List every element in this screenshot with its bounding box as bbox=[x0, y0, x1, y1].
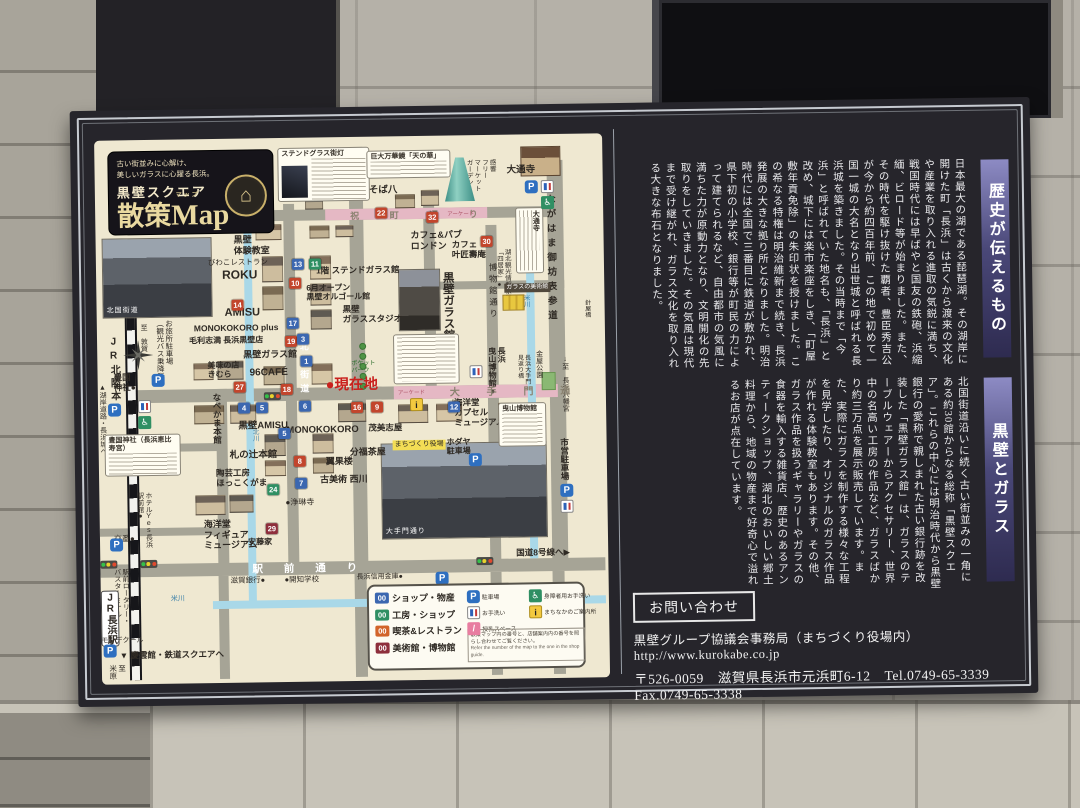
map-label: 黒壁ガラス館 bbox=[440, 271, 455, 340]
photo-inset bbox=[398, 269, 441, 332]
map-label: 米川 bbox=[171, 595, 185, 603]
number-badge: 7 bbox=[295, 478, 307, 489]
legend-category-label: 喫茶&レストラン bbox=[392, 623, 462, 637]
photo-inset: 北国街道 bbox=[102, 237, 213, 319]
contact-line-2: 〒526-0059 滋賀県長浜市元浜町6-12 Tel.0749-65-3339… bbox=[634, 662, 1026, 704]
kurokabe-glass-body: 北国街道沿いに続く古い街並みの一角にある約30館からなる総称「黒壁スクエア」。こ… bbox=[630, 376, 973, 595]
map-label: 金屋公園 bbox=[534, 350, 543, 378]
callout-box: 大通寺 bbox=[515, 207, 544, 273]
contact-box: お問い合わせ 黒壁グループ協議会事務局（まちづくり役場内） http://www… bbox=[633, 587, 1026, 679]
parking-icon: P bbox=[110, 538, 123, 551]
photo-caption: 大手門通り bbox=[386, 526, 426, 537]
map-label: 札の辻本館 bbox=[230, 449, 278, 461]
legend-category-label: 工房・ショップ bbox=[392, 607, 455, 621]
kurokabe-glass-section: 黒壁とガラス 北国街道沿いに続く古い街並みの一角にある約30館からなる総称「黒壁… bbox=[630, 373, 1017, 597]
number-badge: 13 bbox=[292, 259, 304, 270]
map-label: ながはま御坊表参道 bbox=[544, 194, 557, 325]
wheelchair-icon: ♿ bbox=[541, 196, 554, 209]
map-label: そば八 bbox=[369, 184, 398, 196]
info-icon: i bbox=[410, 398, 423, 411]
number-badge: 11 bbox=[309, 258, 321, 269]
number-badge: 6 bbox=[299, 401, 311, 412]
building bbox=[265, 460, 286, 476]
toilet-icon bbox=[469, 365, 482, 378]
map-panel: 北国街道大手門通りステンドグラス街灯巨大万華鏡「天の華」大通寺曳山博物館豊国神社… bbox=[94, 133, 610, 684]
legend-category: 00ショップ・物産 bbox=[375, 590, 467, 604]
map-label: 美味の店 きむら bbox=[207, 361, 239, 380]
street-segment bbox=[219, 576, 231, 679]
legend-facility-label: まちなかのご案内所 bbox=[544, 606, 596, 616]
compass-icon bbox=[123, 340, 153, 370]
photo-background: 北国街道大手門通りステンドグラス街灯巨大万華鏡「天の華」大通寺曳山博物館豊国神社… bbox=[0, 0, 1080, 808]
legend-category-label: ショップ・物産 bbox=[392, 590, 455, 604]
legend-category: 00工房・ショップ bbox=[375, 607, 467, 621]
map-label: 分福茶屋 bbox=[350, 447, 386, 458]
history-heading: 歴史が伝えるもの bbox=[980, 159, 1011, 357]
traffic-signal-icon bbox=[264, 392, 281, 400]
legend-category-badge: 00 bbox=[375, 625, 389, 636]
map-label: 大通寺 bbox=[506, 164, 535, 176]
history-section: 歴史が伝えるもの 日本最大の湖である琵琶湖。その湖岸に開けた町「長浜」は古くから… bbox=[626, 155, 1013, 373]
building bbox=[421, 190, 439, 206]
number-badge: 8 bbox=[294, 456, 306, 467]
map-legend: 00ショップ・物産00工房・ショップ00喫茶&レストラン00美術館・博物館 P駐… bbox=[367, 582, 586, 671]
callout-title: 巨大万華鏡「天の華」 bbox=[370, 153, 446, 162]
map-label: 黒壁ガラス館 bbox=[243, 349, 297, 360]
map-label: 6月オープン 黒壁オルゴール館 bbox=[306, 283, 370, 303]
dark-wall-opening bbox=[96, 0, 340, 122]
map-label: 長浜大手門 見返り橋 bbox=[515, 354, 530, 384]
callout-box: 巨大万華鏡「天の華」 bbox=[366, 150, 450, 179]
number-badge: 24 bbox=[267, 484, 279, 495]
building bbox=[195, 495, 225, 515]
map-label: 至 米原 bbox=[108, 664, 126, 684]
map-label: ●開知学校 bbox=[285, 576, 320, 585]
photo-caption: 北国街道 bbox=[107, 305, 139, 315]
legend-note: 散策マップ内の番号と、店舗案内内の番号を照らし合わせてご覧ください。 Refer… bbox=[467, 628, 585, 663]
map-label: 北国街道 bbox=[298, 342, 309, 398]
map-label: 市営駐車場 bbox=[560, 438, 571, 481]
info-panel: 歴史が伝えるもの 日本最大の湖である琵琶湖。その湖岸に開けた町「長浜」は古くから… bbox=[626, 137, 1017, 591]
legend-facility: ♿身障者用お手洗い bbox=[529, 588, 596, 602]
legend-category: 00美術館・博物館 bbox=[376, 640, 468, 654]
history-body: 日本最大の湖である琵琶湖。その湖岸に開けた町「長浜」は古くから渡来の文化や産業を… bbox=[626, 158, 969, 371]
legend-category-badge: 00 bbox=[375, 609, 389, 620]
legend-facility: お手洗い bbox=[467, 606, 516, 620]
map-title-jp: 散策 bbox=[117, 201, 171, 232]
number-badge: 9 bbox=[371, 402, 383, 413]
legend-note-en: Refer the number of the map to the one i… bbox=[471, 645, 583, 660]
parking-icon: P bbox=[525, 180, 538, 193]
number-badge: 32 bbox=[426, 212, 438, 223]
legend-facility: P駐車場 bbox=[467, 590, 516, 604]
map-label: 安藤家 bbox=[248, 537, 272, 547]
map-label: 毛利志満 長浜黒壁店 bbox=[189, 335, 263, 346]
map-title-block: 古い街並みに心解け、 美しいガラスに心躍る長浜。 黒壁スクエア 散策マップMap… bbox=[108, 150, 273, 234]
number-badge: 5 bbox=[256, 402, 268, 413]
legend-category-badge: 00 bbox=[375, 592, 389, 603]
building bbox=[311, 309, 332, 329]
traffic-signal-icon bbox=[100, 560, 117, 568]
map-label: MONOKOKORO plus bbox=[194, 322, 279, 333]
callout-box: 豊国神社（長浜恵比寿宮） bbox=[104, 434, 181, 477]
toilet-icon bbox=[541, 180, 554, 193]
legend-facility-label: 駐車場 bbox=[482, 592, 500, 601]
building bbox=[309, 225, 329, 238]
callout-title: 豊国神社（長浜恵比寿宮） bbox=[108, 437, 176, 454]
number-badge: 16 bbox=[351, 402, 363, 413]
map-label: なべかま本館 bbox=[212, 393, 223, 444]
traffic-signal-icon bbox=[140, 560, 157, 568]
number-badge: 17 bbox=[287, 318, 299, 329]
map-label: ROKU bbox=[222, 267, 258, 282]
parking-icon: P bbox=[152, 374, 165, 387]
map-label: 湖北観光情報茶屋 「四居家」● bbox=[495, 249, 511, 301]
legend-facility-column-2: ♿身障者用お手洗いiまちなかのご案内所 bbox=[529, 588, 597, 621]
contact-line-1: 黒壁グループ協議会事務局（まちづくり役場内） http://www.kuroka… bbox=[633, 624, 1025, 664]
map-label: 国道8号線へ▶ bbox=[516, 547, 570, 558]
number-badge: 1 bbox=[300, 356, 312, 367]
map-title-furigana: マップ bbox=[175, 192, 199, 199]
map-label: ホダヤ 駐車場 bbox=[447, 437, 471, 456]
number-badge: 14 bbox=[231, 300, 243, 311]
building bbox=[229, 494, 253, 512]
parking-icon: P bbox=[467, 590, 480, 603]
callout-box: ステンドグラス街灯 bbox=[277, 147, 370, 202]
number-badge: 5 bbox=[278, 428, 290, 439]
building bbox=[312, 433, 333, 453]
building bbox=[262, 286, 283, 310]
map-label: ガラスの美術館 bbox=[504, 283, 550, 293]
street-segment bbox=[355, 574, 369, 677]
map-label: ホテルYes長浜 駅前館● bbox=[135, 492, 152, 548]
map-label: 黒壁 ガラススタジオ bbox=[343, 303, 403, 324]
number-badge: 4 bbox=[238, 403, 250, 414]
panel-divider bbox=[613, 129, 622, 674]
parking-icon: P bbox=[104, 645, 117, 658]
number-badge: 3 bbox=[297, 334, 309, 345]
building bbox=[395, 194, 415, 208]
map-label: 滋賀銀行● bbox=[231, 576, 266, 585]
legend-facility-label: お手洗い bbox=[482, 608, 505, 617]
map-label: びわこレストラン bbox=[208, 258, 268, 268]
map-label: まちづくり役場 bbox=[393, 440, 446, 451]
legend-facility-label: 身障者用お手洗い bbox=[544, 590, 591, 600]
map-label: 古美術 西川 bbox=[320, 474, 368, 485]
map-label: アーケード bbox=[398, 390, 425, 397]
kurokabe-glass-heading: 黒壁とガラス bbox=[984, 377, 1015, 581]
map-label: 陶芸工房 ほっこくがま bbox=[216, 467, 267, 488]
map-label: ●現在地 bbox=[326, 377, 379, 395]
callout-title: 大通寺 bbox=[531, 210, 540, 265]
map-label: MONOKOKORO bbox=[286, 424, 358, 436]
map-label: アーケード bbox=[447, 211, 474, 218]
info-icon: i bbox=[529, 605, 542, 618]
number-badge: 29 bbox=[266, 523, 278, 534]
map-label: 長浜信用金庫● bbox=[357, 573, 403, 582]
stone-pavement bbox=[0, 700, 1080, 808]
toilet-icon bbox=[138, 400, 151, 413]
callout-box: 曳山博物館 bbox=[498, 402, 547, 447]
stone-pavement-dark bbox=[0, 713, 150, 808]
glass-museum-icon bbox=[502, 294, 524, 310]
parking-icon: P bbox=[108, 403, 121, 416]
tree-icon bbox=[359, 343, 366, 350]
map-label: 1階 ステンドガラス館 bbox=[316, 264, 400, 275]
parking-icon: P bbox=[469, 453, 482, 466]
map-label: 北川 bbox=[250, 428, 258, 441]
map-label: ポケット パーク bbox=[351, 361, 375, 376]
map-label: 針屋橋 bbox=[582, 299, 589, 317]
number-badge: 10 bbox=[289, 278, 301, 289]
information-board: 北国街道大手門通りステンドグラス街灯巨大万華鏡「天の華」大通寺曳山博物館豊国神社… bbox=[70, 97, 1039, 707]
map-label: ●浄琳寺 bbox=[285, 498, 314, 508]
toilet-icon bbox=[467, 606, 480, 619]
map-label: 96CAFÉ bbox=[249, 367, 288, 379]
number-badge: 27 bbox=[234, 382, 246, 393]
callout-title: 曳山博物館 bbox=[502, 405, 542, 414]
legend-category-label: 美術館・博物館 bbox=[393, 640, 456, 654]
legend-facility: iまちなかのご案内所 bbox=[529, 604, 596, 618]
building bbox=[335, 225, 353, 237]
nursing-icon: / bbox=[467, 622, 480, 635]
wheelchair-icon: ♿ bbox=[529, 589, 542, 602]
legend-category: 00喫茶&レストラン bbox=[375, 623, 467, 637]
map-label: 黒壁 体験教室 bbox=[233, 234, 269, 256]
number-badge: 12 bbox=[448, 401, 460, 412]
map-label: ▼ 慶雲館・鉄道スクエアへ bbox=[120, 649, 224, 661]
number-badge: 18 bbox=[281, 384, 293, 395]
parking-icon: P bbox=[560, 484, 573, 497]
contact-heading: お問い合わせ bbox=[633, 591, 755, 623]
toilet-icon bbox=[560, 500, 573, 513]
map-label: 茂美志屋 bbox=[368, 422, 402, 433]
wheelchair-icon: ♿ bbox=[138, 416, 151, 429]
callout-photo bbox=[281, 166, 307, 198]
number-badge: 30 bbox=[481, 236, 493, 247]
legend-categories: 00ショップ・物産00工房・ショップ00喫茶&レストラン00美術館・博物館 bbox=[375, 590, 468, 663]
traffic-signal-icon bbox=[476, 557, 493, 565]
callout-box bbox=[393, 333, 460, 384]
map-label: 翼果楼 bbox=[326, 456, 353, 467]
map-title-latin: マップMap bbox=[171, 199, 229, 232]
number-badge: 19 bbox=[285, 336, 297, 347]
number-badge: 22 bbox=[375, 207, 387, 218]
legend-category-badge: 00 bbox=[376, 642, 390, 653]
legend-facilities: P駐車場お手洗い/授乳スペース ♿身障者用お手洗いiまちなかのご案内所 散策マッ… bbox=[467, 589, 578, 663]
tree-icon bbox=[359, 353, 366, 360]
